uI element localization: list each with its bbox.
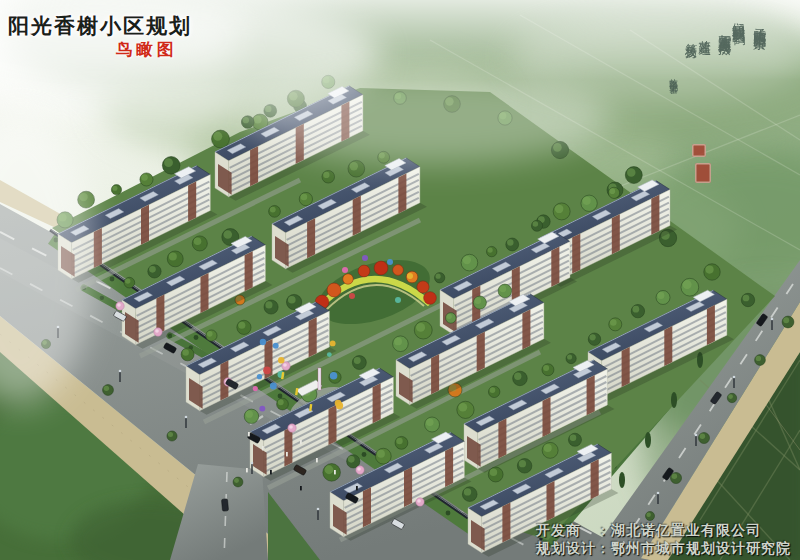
calligraphy-column: 子晓霞阑玉镜上阳台景	[748, 18, 766, 218]
calligraphy-column: 们门碧绿初成列雲结鹤	[731, 12, 750, 218]
car	[221, 499, 228, 511]
calligraphy-column: 朝雲谢惠蕙九天俣撿	[714, 24, 732, 218]
design-credit: 规划设计：鄂州市城市规划设计研究院	[536, 539, 791, 557]
credits: 开发商 ：湖北诺亿置业有限公司 规划设计：鄂州市城市规划设计研究院	[536, 521, 791, 557]
calligraphy-column: 若建遥	[697, 30, 715, 218]
calligraphy-column: 筝夭枝扬	[681, 34, 698, 218]
developer-credit: 开发商 ：湖北诺亿置业有限公司	[536, 521, 791, 539]
calligraphy-column: 乾隆丙子鄣宋書	[669, 72, 681, 218]
birdseye-rendering: 阳光香榭小区规划 鸟瞰图 子晓霞阑玉镜上阳台景们门碧绿初成列雲结鹤朝雲谢惠蕙九天…	[0, 0, 800, 560]
seal-stamp	[695, 163, 711, 183]
calligraphy-inscription: 子晓霞阑玉镜上阳台景们门碧绿初成列雲结鹤朝雲谢惠蕙九天俣撿若建遥筝夭枝扬乾隆丙子…	[642, 6, 764, 218]
seal-stamp	[692, 144, 706, 157]
view-type-label: 鸟瞰图	[116, 39, 178, 61]
page-title: 阳光香榭小区规划	[8, 12, 192, 40]
